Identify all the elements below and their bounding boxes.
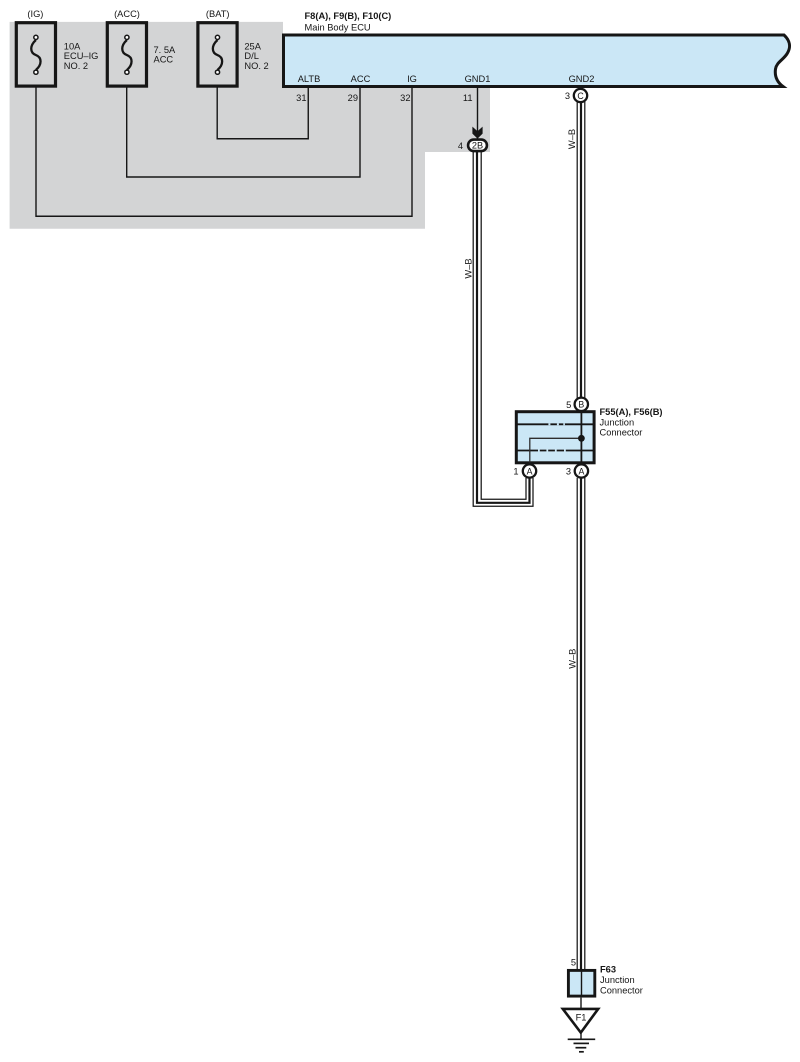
svg-text:11: 11 <box>463 93 473 103</box>
svg-text:4: 4 <box>458 141 463 151</box>
svg-text:W–B: W–B <box>464 258 474 278</box>
svg-text:ECU–IG: ECU–IG <box>64 51 99 61</box>
svg-text:Junction: Junction <box>600 417 635 427</box>
svg-text:W–B: W–B <box>567 129 577 149</box>
svg-text:7. 5A: 7. 5A <box>154 45 177 55</box>
svg-text:Main Body ECU: Main Body ECU <box>305 23 371 33</box>
svg-text:3: 3 <box>565 91 570 101</box>
svg-text:NO. 2: NO. 2 <box>64 61 88 71</box>
svg-text:1: 1 <box>513 467 518 477</box>
svg-text:W–B: W–B <box>567 649 577 669</box>
svg-text:NO. 2: NO. 2 <box>244 61 268 71</box>
svg-text:A: A <box>527 466 533 476</box>
svg-text:3: 3 <box>566 467 571 477</box>
svg-text:F63: F63 <box>600 965 616 975</box>
svg-text:ACC: ACC <box>154 55 174 65</box>
svg-text:D/L: D/L <box>244 51 258 61</box>
svg-text:2B: 2B <box>472 141 483 151</box>
svg-text:C: C <box>577 91 584 101</box>
svg-text:5: 5 <box>571 957 576 967</box>
svg-text:A: A <box>578 466 584 476</box>
svg-text:B: B <box>578 400 584 410</box>
svg-text:GND2: GND2 <box>569 74 595 84</box>
svg-text:ACC: ACC <box>351 74 371 84</box>
svg-text:29: 29 <box>348 93 358 103</box>
svg-text:Connector: Connector <box>600 986 643 996</box>
svg-text:F8(A), F9(B), F10(C): F8(A), F9(B), F10(C) <box>305 11 392 21</box>
svg-text:ALTB: ALTB <box>298 74 321 84</box>
svg-text:25A: 25A <box>244 41 261 51</box>
svg-text:Junction: Junction <box>600 975 635 985</box>
svg-text:31: 31 <box>296 93 306 103</box>
svg-text:IG: IG <box>407 74 417 84</box>
svg-text:Connector: Connector <box>600 428 643 438</box>
svg-text:F55(A), F56(B): F55(A), F56(B) <box>600 407 663 417</box>
svg-text:32: 32 <box>400 93 410 103</box>
svg-text:F1: F1 <box>576 1013 587 1023</box>
svg-text:10A: 10A <box>64 41 81 51</box>
svg-text:(IG): (IG) <box>27 9 43 19</box>
svg-text:(ACC): (ACC) <box>114 9 140 19</box>
svg-text:GND1: GND1 <box>465 74 491 84</box>
svg-text:(BAT): (BAT) <box>206 9 230 19</box>
svg-text:5: 5 <box>566 400 571 410</box>
